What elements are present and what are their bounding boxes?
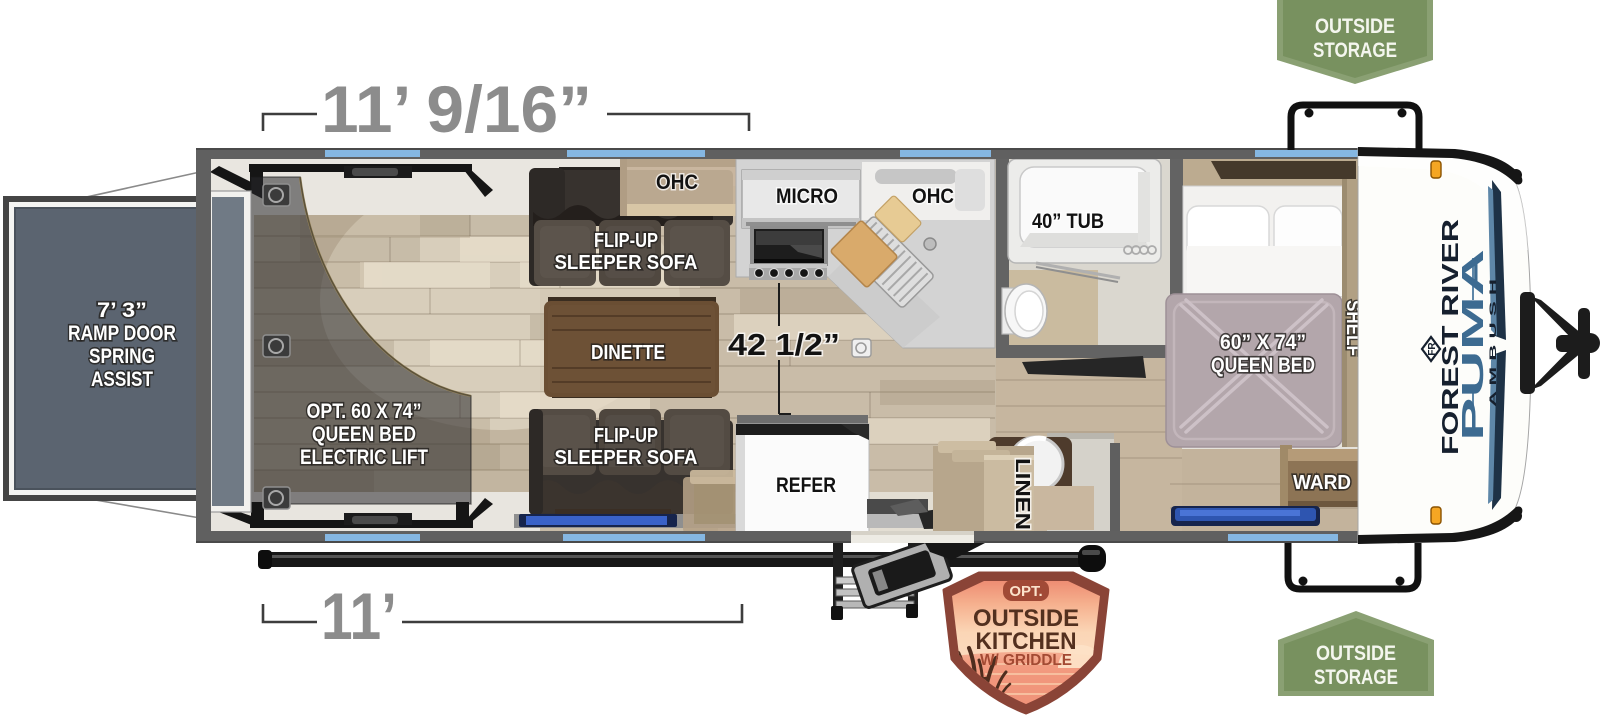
svg-text:SLEEPER SOFA: SLEEPER SOFA (555, 252, 698, 274)
svg-text:WARD: WARD (1293, 472, 1351, 494)
svg-text:PUMA: PUMA (1455, 249, 1490, 441)
svg-text:MICRO: MICRO (776, 185, 838, 208)
svg-text:STORAGE: STORAGE (1313, 39, 1397, 62)
svg-text:QUEEN BED: QUEEN BED (312, 423, 416, 446)
svg-text:OUTSIDE: OUTSIDE (1316, 642, 1396, 665)
svg-text:ASSIST: ASSIST (91, 368, 153, 391)
svg-text:STORAGE: STORAGE (1314, 666, 1398, 689)
svg-text:W/ GRIDDLE: W/ GRIDDLE (980, 652, 1072, 669)
svg-text:OPT.: OPT. (1009, 583, 1042, 600)
svg-text:FLIP-UP: FLIP-UP (594, 230, 658, 252)
svg-text:LINEN: LINEN (1011, 458, 1033, 530)
svg-text:OUTSIDE: OUTSIDE (1315, 15, 1395, 38)
svg-text:OPT. 60 X 74”: OPT. 60 X 74” (307, 400, 422, 423)
svg-text:FLIP-UP: FLIP-UP (594, 425, 658, 447)
svg-text:7’ 3”: 7’ 3” (97, 299, 147, 322)
svg-text:OHC: OHC (656, 171, 698, 194)
svg-text:60” X 74”: 60” X 74” (1220, 331, 1306, 354)
svg-text:FR: FR (1427, 342, 1438, 356)
svg-text:REFER: REFER (776, 474, 836, 497)
svg-text:11’ 9/16”: 11’ 9/16” (321, 72, 592, 146)
svg-text:DINETTE: DINETTE (591, 342, 665, 364)
svg-text:SPRING: SPRING (89, 345, 155, 368)
svg-text:QUEEN BED: QUEEN BED (1211, 354, 1315, 377)
svg-text:11’: 11’ (321, 579, 397, 653)
svg-text:KITCHEN: KITCHEN (976, 628, 1077, 655)
svg-text:ELECTRIC LIFT: ELECTRIC LIFT (300, 446, 428, 469)
svg-text:OHC: OHC (912, 185, 954, 208)
svg-text:RAMP DOOR: RAMP DOOR (68, 322, 176, 345)
svg-text:SLEEPER SOFA: SLEEPER SOFA (555, 447, 698, 469)
svg-text:40” TUB: 40” TUB (1032, 210, 1104, 233)
svg-text:A M B U S H: A M B U S H (1488, 279, 1499, 407)
svg-text:42 1/2”: 42 1/2” (728, 327, 840, 362)
